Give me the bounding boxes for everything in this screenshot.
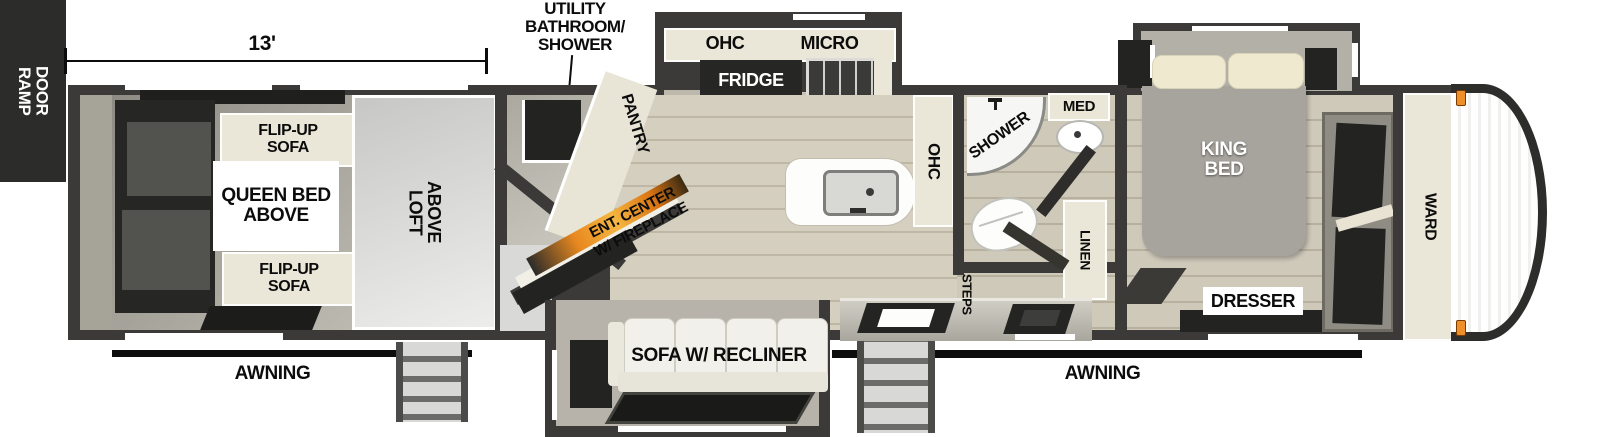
- front-cap: [1451, 84, 1547, 341]
- linen-closet: LINEN: [1063, 200, 1107, 300]
- ohc-island-label: OHC: [925, 143, 943, 180]
- step-rung: [403, 356, 461, 362]
- flip-up-sofa-label: FLIP-UP SOFA: [259, 262, 318, 295]
- sofa-rug: [605, 392, 815, 424]
- sofa-window: [570, 340, 612, 408]
- flip-up-sofa-bottom: FLIP-UP SOFA: [222, 252, 356, 306]
- window-slit: [1352, 43, 1358, 77]
- steps-label: STEPS: [960, 268, 974, 320]
- queen-bed-above-label-box: QUEEN BED ABOVE: [213, 161, 339, 251]
- dimension-label: 13': [222, 33, 302, 55]
- front-wardrobe: WARD: [1403, 93, 1455, 341]
- ramp-door-label: RAMP DOOR: [15, 66, 50, 115]
- wardrobe-door: [1332, 123, 1387, 219]
- step-rung: [864, 424, 928, 430]
- window-slit: [1208, 334, 1358, 341]
- fridge-label: FRIDGE: [718, 71, 784, 90]
- loft-label: LOFT ABOVE: [406, 181, 443, 243]
- med-label: MED: [1063, 99, 1095, 115]
- step-rung: [864, 358, 928, 364]
- dresser-label-box: DRESSER: [1203, 287, 1303, 315]
- utility-bath-label: UTILITY BATHROOM/ SHOWER: [495, 0, 655, 55]
- medicine-cabinet: MED: [1048, 93, 1110, 121]
- dimension-tick-left: [64, 48, 67, 74]
- flip-up-sofa-label: FLIP-UP SOFA: [258, 123, 317, 156]
- bath-sink: [1056, 120, 1104, 154]
- queen-bed-label: QUEEN BED ABOVE: [221, 186, 330, 226]
- pillow: [1152, 55, 1226, 89]
- awning-label-left: AWNING: [200, 364, 345, 384]
- shower-head-stem: [994, 98, 997, 110]
- sofa-label: SOFA W/ RECLINER: [628, 346, 810, 366]
- marker-light: [1456, 90, 1466, 106]
- ward-label: WARD: [1421, 193, 1438, 240]
- bathroom-bedroom-wall: [1115, 85, 1127, 277]
- king-bed-label: KING BED: [1164, 140, 1284, 180]
- fridge: FRIDGE: [700, 60, 802, 100]
- bedroom-window-left: [1118, 40, 1152, 88]
- garage-rug: [200, 306, 322, 330]
- step-rung: [864, 402, 928, 408]
- awning-label-right: AWNING: [1030, 364, 1175, 384]
- dimension-tick-right: [485, 48, 488, 74]
- wardrobe-door: [1332, 227, 1385, 325]
- step-well-opening: [877, 309, 935, 327]
- micro-label: MICRO: [792, 34, 867, 53]
- step-rung: [864, 380, 928, 386]
- window-slit: [552, 350, 557, 420]
- floorplan-diagram: RAMP DOOR 13' UTILITY BATHROOM/ SHOWER A…: [0, 0, 1600, 437]
- marker-light: [1456, 320, 1466, 336]
- bath-sink-drain: [1074, 131, 1081, 138]
- ohc-label: OHC: [690, 34, 760, 53]
- window-slit: [1015, 334, 1075, 340]
- loft-area: LOFT ABOVE: [352, 95, 497, 330]
- sink-drain: [866, 188, 874, 196]
- island-overhead-cabinet: OHC: [913, 95, 954, 227]
- linen-label: LINEN: [1078, 230, 1093, 270]
- step-rung: [403, 376, 461, 382]
- sink-faucet: [850, 208, 866, 213]
- bathroom-left-wall: [953, 85, 964, 275]
- window-slit: [125, 333, 283, 340]
- garage-entry-steps: [396, 342, 468, 422]
- flip-up-sofa-top: FLIP-UP SOFA: [220, 113, 356, 167]
- ramp-door: RAMP DOOR: [0, 0, 66, 182]
- ward-wall: [1393, 85, 1403, 340]
- dresser-label: DRESSER: [1211, 292, 1295, 311]
- pillow: [1228, 53, 1304, 89]
- window-slit: [125, 84, 272, 90]
- window-slit: [793, 14, 865, 20]
- dimension-line: [64, 60, 488, 62]
- entry-hatch-inner: [1019, 310, 1060, 326]
- step-rung: [403, 414, 461, 420]
- garage-window: [127, 122, 211, 196]
- step-rung: [403, 396, 461, 402]
- sofa-seat: [618, 372, 828, 392]
- main-entry-steps: [857, 336, 935, 433]
- window-slit: [300, 84, 468, 90]
- garage-window: [122, 210, 210, 290]
- window-slit: [618, 426, 786, 432]
- bedroom-window-right: [1305, 48, 1337, 90]
